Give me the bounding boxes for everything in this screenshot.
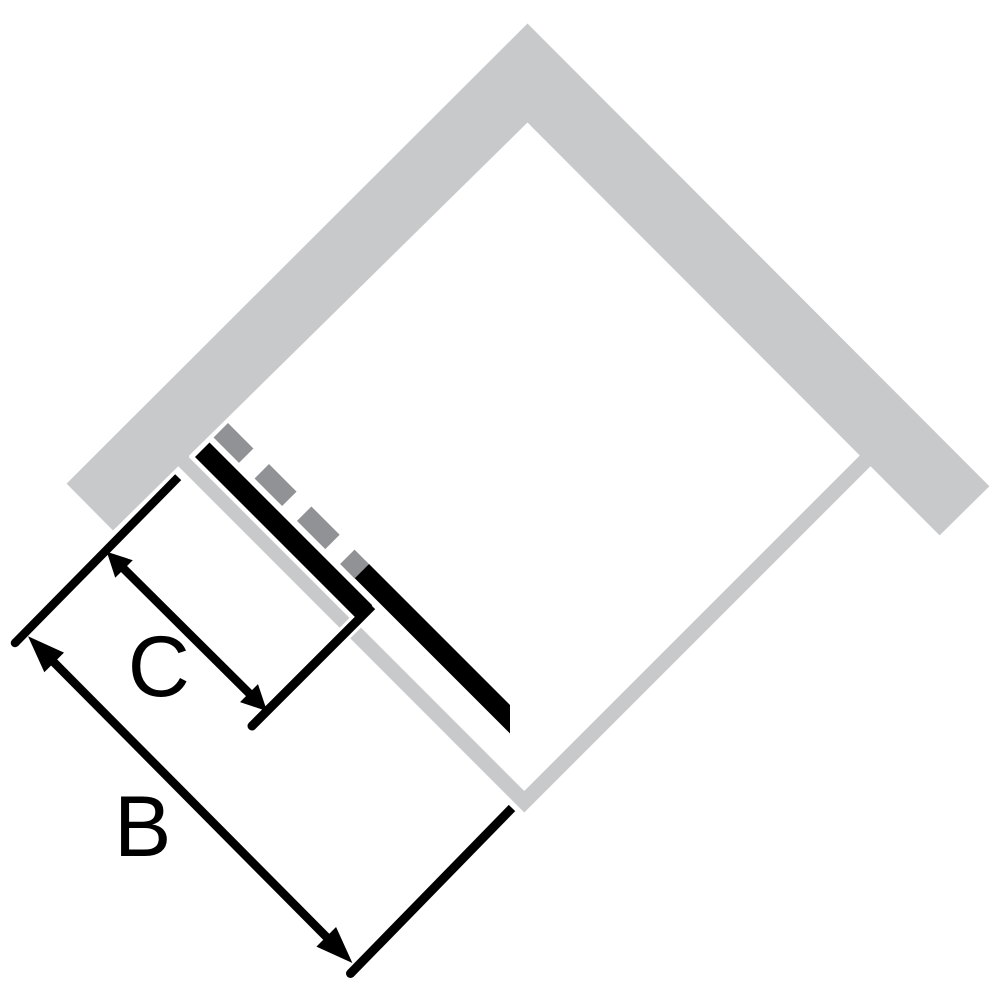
svg-text:C: C [128, 619, 190, 715]
svg-text:B: B [114, 779, 171, 875]
